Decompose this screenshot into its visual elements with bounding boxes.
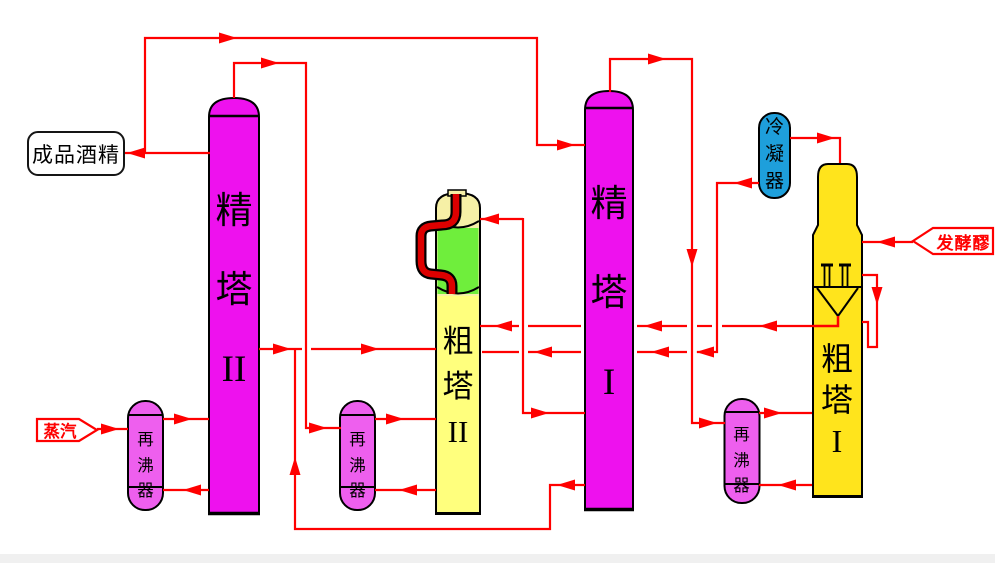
flow-arrow-icon [644, 321, 662, 332]
flow-arrow-icon [531, 408, 549, 419]
flow-arrow-icon [778, 480, 796, 491]
column-rectifier-2-label: 精塔II [209, 193, 259, 388]
condenser-label: 冷凝器 [759, 118, 790, 191]
flow-arrow-icon [101, 424, 119, 435]
flow-arrow-icon [290, 457, 301, 475]
flow-arrow-icon [309, 423, 327, 434]
flow-arrow-icon [386, 414, 404, 425]
reboiler-middle-label: 再沸器 [340, 432, 375, 500]
column-crude-2-label: 粗塔II [436, 326, 480, 447]
pipe-line [862, 275, 877, 347]
flow-arrow-icon [648, 54, 666, 65]
product-alcohol-label: 成品酒精 [27, 131, 125, 176]
flow-arrow-icon [817, 133, 835, 144]
flow-arrow-icon [127, 148, 145, 159]
flow-arrow-icon [481, 214, 499, 225]
flow-arrow-icon [759, 321, 777, 332]
green-section [438, 228, 479, 294]
column-rectifier-1-label: 精塔I [585, 186, 633, 401]
reboiler-right-label: 再沸器 [724, 427, 759, 495]
flow-arrow-icon [261, 58, 279, 69]
flow-arrow-icon [219, 33, 237, 44]
column-crude-1-label: 粗塔I [812, 343, 862, 457]
flow-arrow-icon [699, 418, 717, 429]
flow-arrow-icon [687, 249, 698, 267]
flow-arrow-icon [399, 485, 417, 496]
flow-arrow-icon [557, 480, 575, 491]
flow-arrow-icon [494, 321, 512, 332]
flow-arrow-icon [734, 178, 752, 189]
window-bottom-edge [0, 554, 995, 563]
flow-arrow-icon [557, 140, 575, 151]
flow-arrow-icon [764, 408, 782, 419]
pipe-line [523, 218, 585, 413]
flow-arrow-icon [174, 414, 192, 425]
flow-arrow-icon [183, 485, 201, 496]
flow-arrow-icon [696, 347, 714, 358]
reboiler-left-label: 再沸器 [128, 432, 163, 500]
flow-arrow-icon [273, 344, 291, 355]
mash-flag-label: 发酵醪 [935, 229, 992, 253]
flow-arrow-icon [534, 347, 552, 358]
process-flow-diagram: 成品酒精 精塔II 粗塔II 精塔I 粗塔I 冷凝器 再沸器 再沸器 再沸器 蒸… [0, 0, 995, 563]
flow-arrow-icon [872, 287, 883, 305]
flow-arrow-icon [361, 344, 379, 355]
flow-arrow-icon [651, 347, 669, 358]
pipe-line [790, 138, 840, 163]
steam-flag-label: 蒸汽 [40, 420, 80, 440]
flow-arrow-icon [877, 237, 895, 248]
